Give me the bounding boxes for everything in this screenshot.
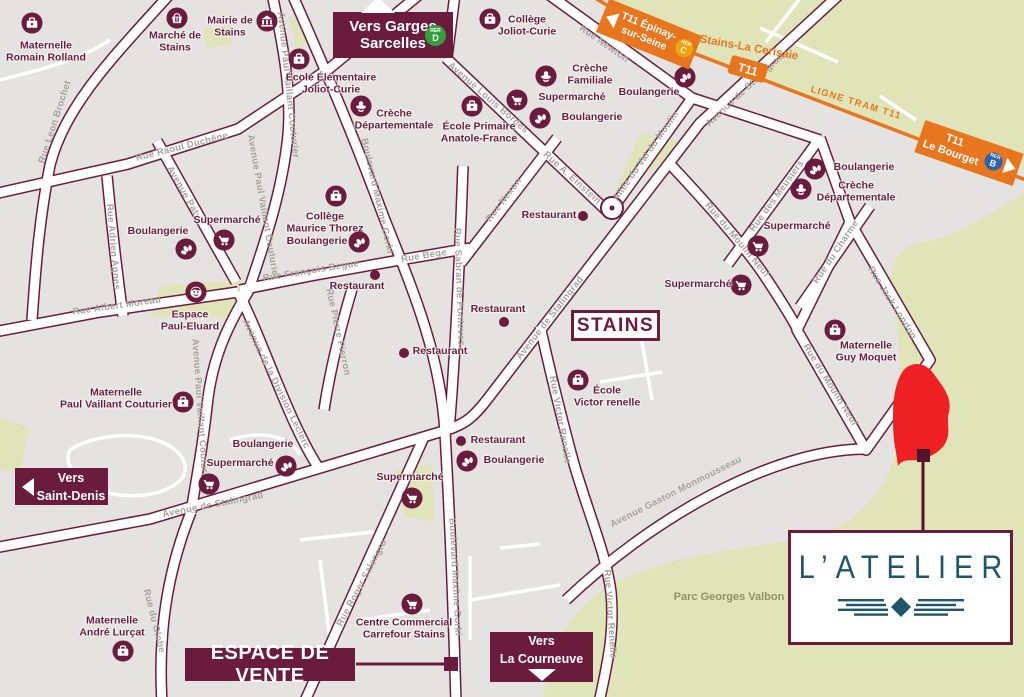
- arrow-left-icon: [22, 478, 34, 496]
- landmark-label: CrècheDépartementale: [355, 108, 434, 132]
- pretzel-icon: [674, 66, 697, 89]
- landmark-label: Mairie deStains: [207, 15, 253, 39]
- site-marker: [917, 449, 930, 462]
- pretzel-icon: [175, 238, 198, 261]
- cart-icon: [747, 235, 770, 258]
- arrow-right-icon: [1002, 158, 1018, 177]
- landmark-label: Boulangerie: [834, 162, 895, 174]
- cart-icon: [730, 274, 753, 297]
- landmark-label: Restaurant: [413, 346, 468, 358]
- pretzel-icon: [529, 107, 552, 130]
- cart-icon: [198, 473, 221, 496]
- landmark-label: Marché deStains: [149, 30, 201, 54]
- rer-d-badge: RER D: [425, 25, 446, 46]
- school-icon: [112, 640, 135, 663]
- landmark-label: Boulangerie: [233, 439, 294, 451]
- access-map: Rue Leon BrochetRue Raoul DuchêneAvenue …: [0, 0, 1024, 697]
- banner-vers-saint-denis: Vers Saint-Denis: [15, 468, 108, 505]
- park-label: Parc Georges Valbon: [674, 591, 785, 603]
- landmark-label: Boulangerie: [484, 455, 545, 467]
- landmark-label: CrècheFamiliale: [568, 63, 613, 87]
- landmark-label: Supermarché: [538, 92, 605, 104]
- restaurant-dot-icon: [499, 317, 509, 327]
- landmark-label: Supermarché: [376, 472, 443, 484]
- cart-icon: [213, 229, 236, 252]
- banner-line: Vers: [528, 634, 554, 648]
- landmark-label: MaternelleAndré Lurçat: [79, 615, 144, 639]
- banner-line: Saint-Denis: [37, 489, 106, 503]
- pacifier-icon: [535, 65, 558, 88]
- landmark-label: CrècheDépartementale: [817, 180, 896, 204]
- school-icon: [824, 319, 847, 342]
- landmark-label: Boulangerie: [128, 226, 189, 238]
- restaurant-dot-icon: [578, 211, 588, 221]
- restaurant-dot-icon: [399, 348, 409, 358]
- cart-icon: [401, 487, 424, 510]
- city-name-box: STAINS: [571, 310, 660, 341]
- landmark-label: École ÉlémentaireJoliot-Curie: [286, 72, 376, 96]
- landmark-label: CollègeJoliot-Curie: [498, 14, 556, 38]
- landmark-label: Restaurant: [471, 304, 526, 316]
- landmark-label: Restaurant: [522, 210, 577, 222]
- banner-espace-de-vente: ESPACE DE VENTE: [185, 648, 355, 681]
- townhall-icon: [256, 10, 279, 33]
- landmark-label: Centre CommercialCarrefour Stains: [356, 617, 452, 641]
- banner-vers-la-courneuve: Vers La Courneuve: [490, 632, 593, 682]
- banner-vers-garges: Vers Garges Sarcelles RER D: [333, 12, 453, 58]
- pretzel-icon: [348, 231, 371, 254]
- landmark-label: MaternellePaul Vaillant Couturier: [60, 387, 172, 411]
- landmark-label: Boulangerie: [562, 112, 623, 124]
- landmark-label: MaternelleRomain Rolland: [6, 40, 86, 64]
- basket-icon: [166, 7, 189, 30]
- logo-deco-ornament: [826, 593, 976, 623]
- landmark-label: Restaurant: [471, 435, 526, 447]
- arrow-down-icon: [528, 669, 556, 681]
- landmark-label: Supermarché: [664, 279, 731, 291]
- project-logo-box: L’ATELIER: [788, 530, 1013, 645]
- school-icon: [288, 48, 311, 71]
- landmark-label: ÉcoleVictor renelle: [574, 385, 640, 409]
- cart-icon: [401, 593, 424, 616]
- school-icon: [21, 12, 44, 35]
- pretzel-icon: [456, 450, 479, 473]
- school-icon: [461, 95, 484, 118]
- landmark-label: EspacePaul-Eluard: [161, 309, 219, 333]
- restaurant-dot-icon: [370, 270, 380, 280]
- landmark-label: Boulangerie: [619, 87, 680, 99]
- restaurant-dot-icon: [456, 436, 466, 446]
- landmark-label: École PrimaireAnatole-France: [441, 121, 517, 145]
- school-icon: [325, 185, 348, 208]
- landmark-label: Supermarché: [206, 458, 273, 470]
- pacifier-icon: [790, 178, 813, 201]
- landmark-label: Supermarché: [193, 215, 260, 227]
- landmark-label: MaternelleGuy Moquet: [836, 340, 897, 364]
- banner-line: Vers: [58, 471, 84, 485]
- landmark-label: Supermarché: [763, 221, 830, 233]
- arrow-up-icon: [361, 0, 395, 13]
- espace-marker: [444, 657, 458, 671]
- landmark-label: Boulangerie: [287, 236, 348, 248]
- banner-line: La Courneuve: [500, 652, 583, 666]
- face-icon: [185, 281, 208, 304]
- landmark-label: Restaurant: [330, 281, 385, 293]
- school-icon: [172, 391, 195, 414]
- cart-icon: [506, 89, 529, 112]
- pretzel-icon: [275, 455, 298, 478]
- project-logo-name: L’ATELIER: [791, 550, 1011, 587]
